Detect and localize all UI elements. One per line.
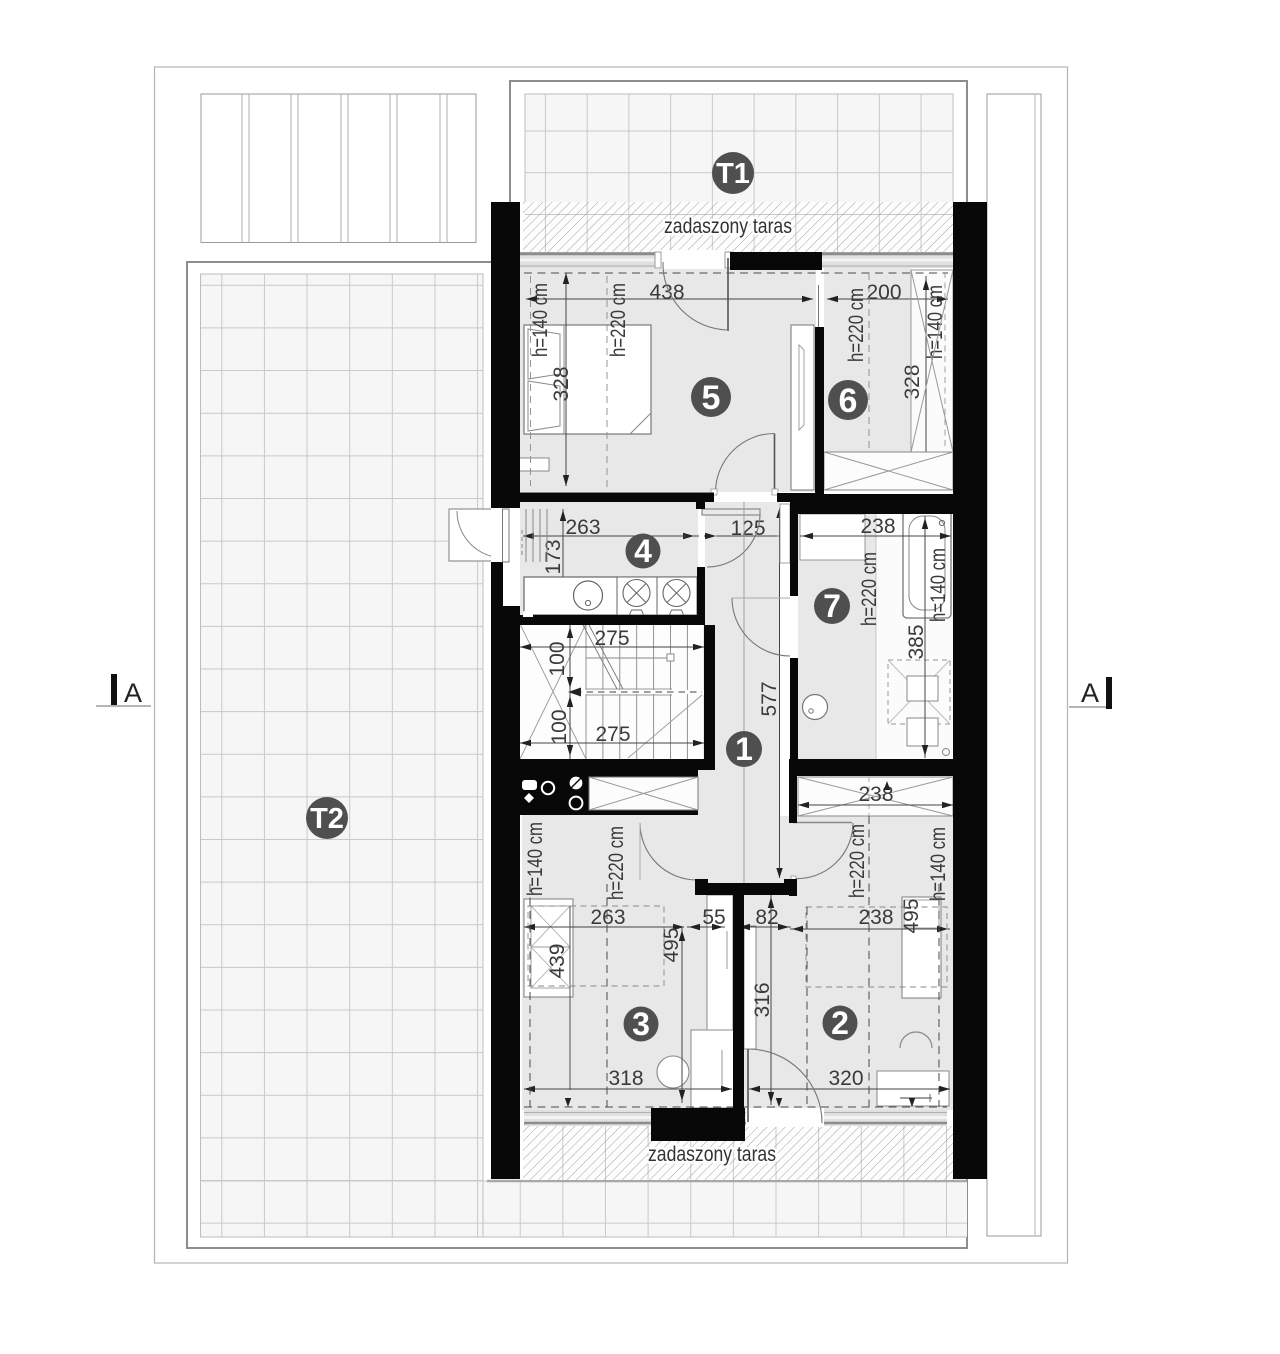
svg-text:T2: T2 bbox=[310, 803, 344, 835]
svg-text:T1: T1 bbox=[716, 158, 750, 190]
svg-text:zadaszony taras: zadaszony taras bbox=[648, 1143, 776, 1166]
svg-text:318: 318 bbox=[608, 1067, 643, 1090]
svg-text:125: 125 bbox=[730, 517, 765, 540]
svg-text:A: A bbox=[1081, 678, 1099, 708]
svg-text:h=220 cm: h=220 cm bbox=[858, 552, 881, 626]
svg-text:h=140 cm: h=140 cm bbox=[529, 283, 552, 357]
svg-text:495: 495 bbox=[900, 898, 923, 933]
svg-text:320: 320 bbox=[828, 1067, 863, 1090]
svg-text:h=220 cm: h=220 cm bbox=[605, 826, 628, 900]
svg-text:328: 328 bbox=[550, 366, 573, 401]
svg-text:h=220 cm: h=220 cm bbox=[607, 283, 630, 357]
svg-text:4: 4 bbox=[634, 533, 652, 569]
svg-text:6: 6 bbox=[839, 382, 858, 420]
svg-text:h=140 cm: h=140 cm bbox=[927, 548, 950, 622]
svg-text:439: 439 bbox=[546, 943, 569, 978]
svg-text:238: 238 bbox=[860, 515, 895, 538]
svg-text:100: 100 bbox=[548, 709, 571, 744]
svg-text:100: 100 bbox=[546, 641, 569, 676]
svg-text:200: 200 bbox=[866, 281, 901, 304]
svg-text:2: 2 bbox=[831, 1005, 849, 1041]
svg-text:238: 238 bbox=[858, 906, 893, 929]
svg-text:577: 577 bbox=[758, 681, 781, 716]
svg-text:h=220 cm: h=220 cm bbox=[846, 824, 869, 898]
svg-text:495: 495 bbox=[660, 927, 683, 962]
svg-text:5: 5 bbox=[702, 379, 721, 417]
svg-text:263: 263 bbox=[590, 906, 625, 929]
svg-text:3: 3 bbox=[632, 1006, 650, 1042]
svg-text:173: 173 bbox=[542, 539, 565, 574]
svg-text:h=220 cm: h=220 cm bbox=[845, 288, 868, 362]
svg-text:438: 438 bbox=[649, 281, 684, 304]
svg-text:zadaszony taras: zadaszony taras bbox=[664, 215, 792, 238]
svg-text:328: 328 bbox=[901, 364, 924, 399]
svg-text:A: A bbox=[124, 678, 142, 708]
svg-text:82: 82 bbox=[755, 906, 778, 929]
svg-text:7: 7 bbox=[823, 588, 841, 624]
svg-text:1: 1 bbox=[735, 731, 753, 767]
svg-text:h=140 cm: h=140 cm bbox=[524, 822, 547, 896]
